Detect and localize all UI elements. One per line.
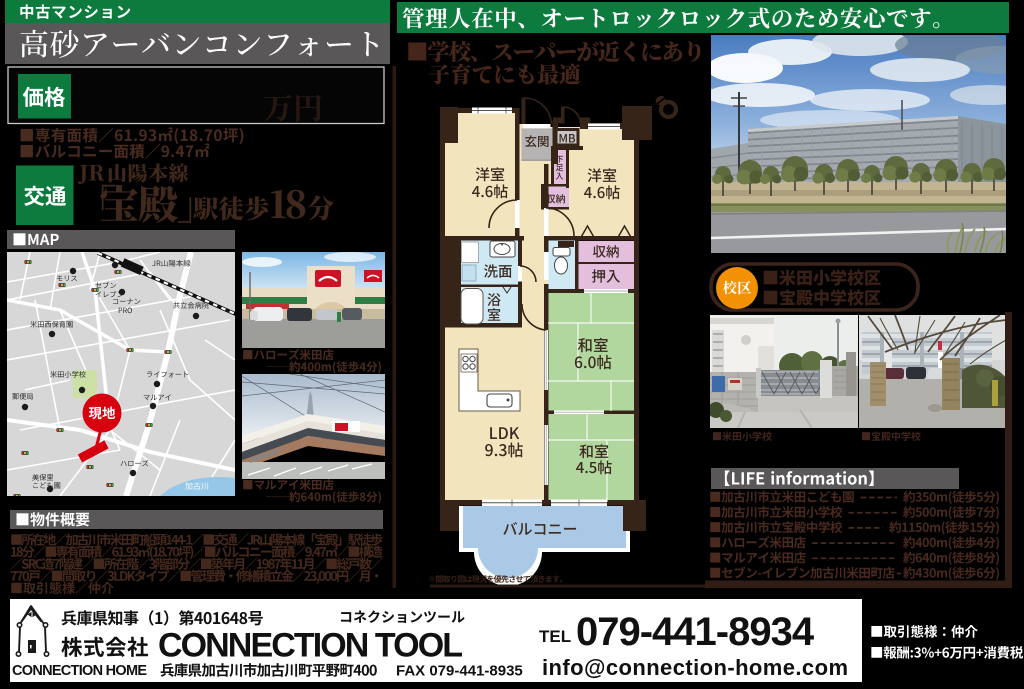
svg-text:CONNECTION HOME: CONNECTION HOME [12, 663, 147, 679]
svg-text:info@connection-home.com: info@connection-home.com [542, 655, 848, 680]
svg-text:FAX 079-441-8935: FAX 079-441-8935 [396, 663, 523, 680]
svg-text:CONNECTION TOOL: CONNECTION TOOL [158, 627, 463, 665]
svg-text:079-441-8934: 079-441-8934 [576, 610, 815, 654]
svg-text:TEL: TEL [539, 627, 571, 646]
